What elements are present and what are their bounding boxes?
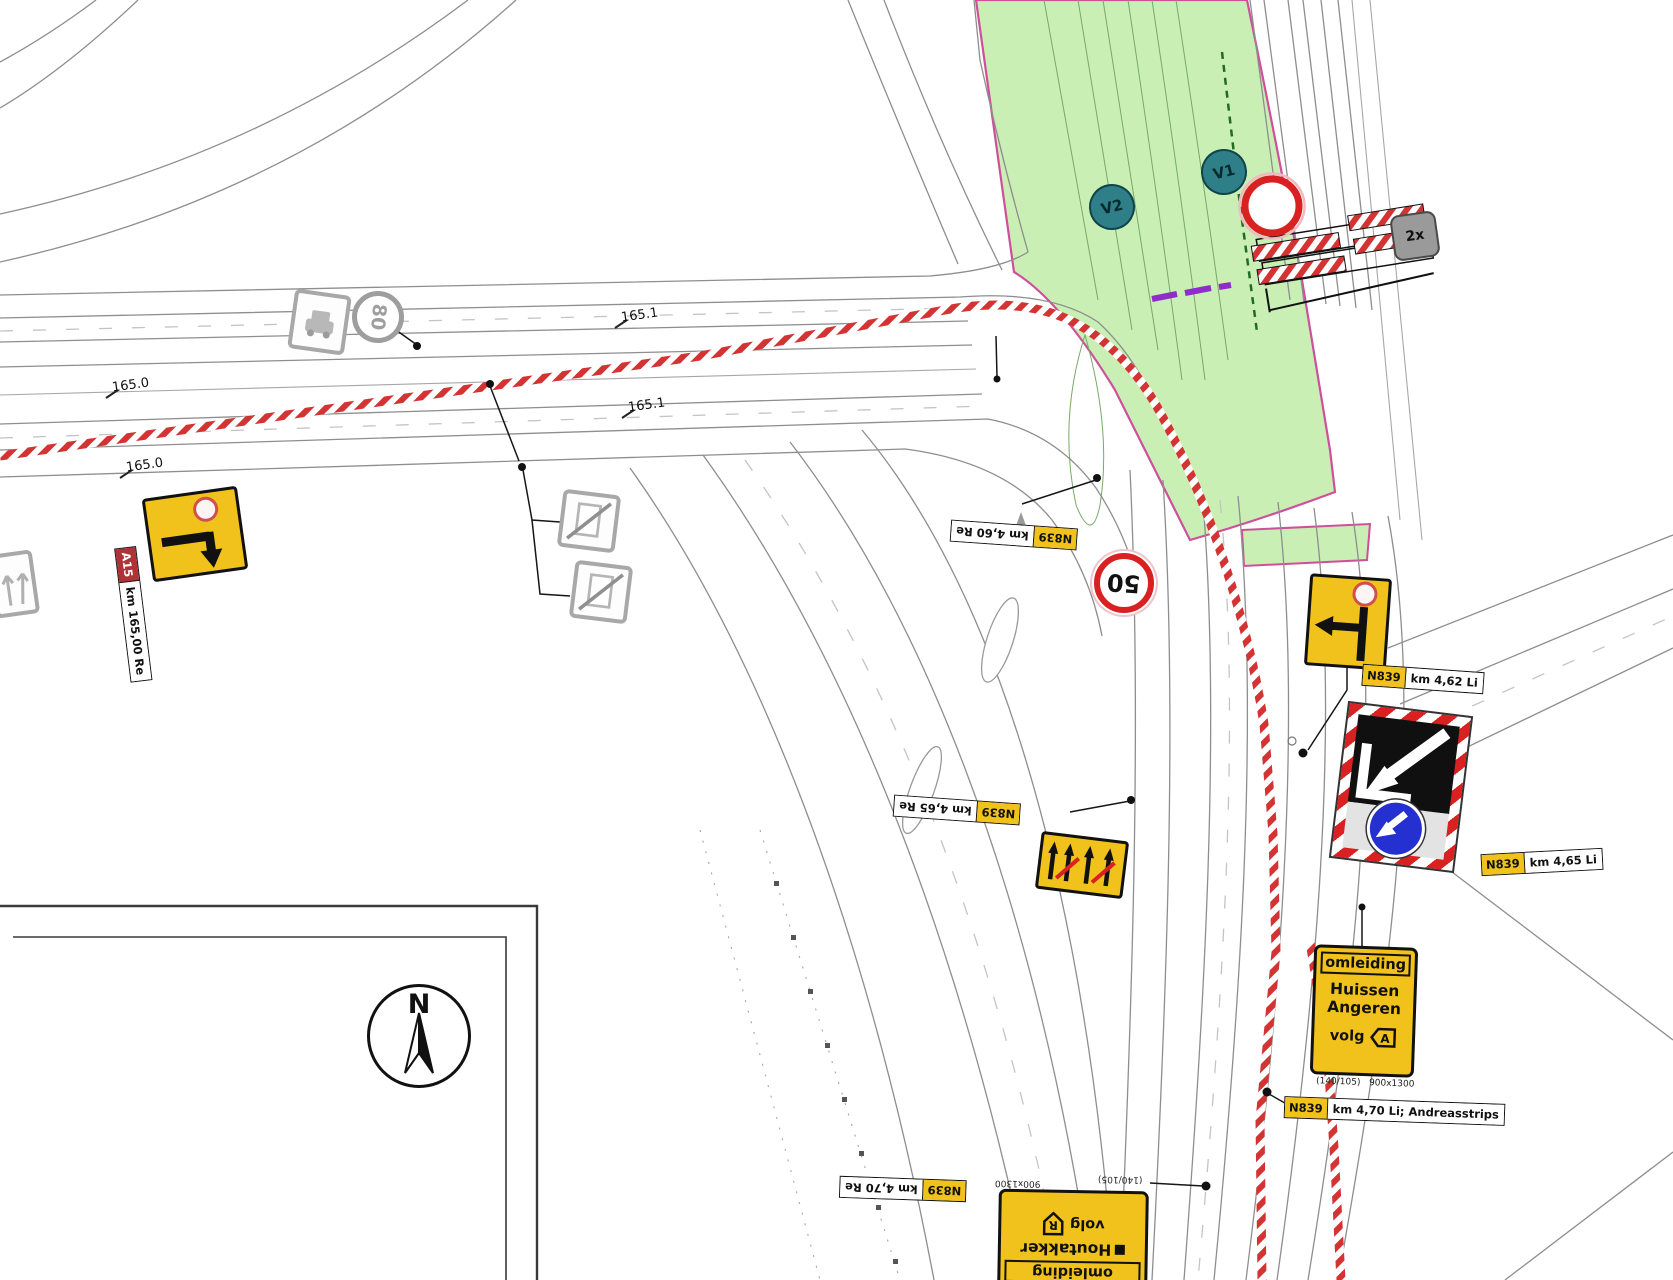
route-code-r-badge: R [1042,1211,1064,1235]
barrier-count-value: 2x [1405,227,1426,245]
arrow-board-panel [1348,714,1460,814]
detour-follow-label: volg [1329,1028,1364,1045]
road-number-a15: A15 [115,547,139,583]
compass-needle-icon [370,987,468,1085]
road-number-n839: N839 [1033,526,1077,549]
detour-destination-1: Houtakker [1020,1239,1111,1259]
detour-sign-huissen: omleiding Huissen Angeren volg A [1310,944,1418,1078]
detour-destination-2: Angeren [1319,997,1410,1018]
spec-size-code: (140/105) [1098,1174,1143,1185]
car-icon [296,299,343,344]
km-value: km 4,62 Li [1405,668,1484,693]
km-value: km 4,65 Li [1524,849,1602,873]
route-code-r: R [1048,1218,1057,1232]
km-value: km 4,65 Re [893,796,977,822]
covered-sign-1 [557,489,622,554]
site-plan-drawing [0,0,1673,1280]
speed-50-value: 50 [1106,568,1141,598]
spec-size-code: (140/105) [1316,1076,1361,1088]
arrow-board-truck [1329,701,1473,873]
road-number-n839: N839 [922,1180,965,1201]
keep-left-arrow-icon [1368,800,1419,851]
km-value: km 4,70 Re [840,1177,923,1200]
detour-arrow-sign-west [142,486,249,583]
lane-merge-arrows-icon [1039,836,1124,893]
closed-road-sign [1240,174,1305,239]
existing-car-sign [287,288,352,355]
route-code-a: A [1381,1032,1391,1046]
road-number-n839: N839 [1285,1097,1328,1118]
industrial-area-icon [1115,1245,1125,1255]
route-code-a-badge: A [1370,1027,1397,1048]
lane-merge-sign [1035,831,1129,899]
lane-arrows-icon [0,559,32,609]
detour-header: omleiding [1004,1260,1140,1280]
road-number-n839: N839 [976,801,1020,824]
km-chip-n839-470re: N839 km 4,70 Re [839,1176,967,1202]
speed-80-value: 80 [366,303,390,331]
work-zone-green-patch [1242,524,1370,566]
covered-sign-icon [573,564,629,620]
road-number-n839: N839 [1362,665,1406,688]
sign-spec-print: 900x1300 [995,1178,1041,1189]
detour-follow-label: volg [1070,1216,1105,1233]
barrier-count-tag: 2x [1389,210,1441,262]
covered-sign-2 [569,560,634,625]
diagonal-arrow-icon [1348,714,1460,814]
spec-dimensions: 900x1300 [1369,1078,1415,1090]
work-zone-stripe-boundary [0,305,1341,1280]
road-lines [0,0,1673,1280]
km-value: km 4,60 Re [950,521,1034,547]
title-block-frame [0,906,537,1280]
spec-dimensions: 900x1300 [995,1178,1041,1189]
detour-header: omleiding [1320,951,1411,976]
north-arrow: N [367,984,471,1088]
turn-left-arrow-icon [1308,578,1388,667]
keep-left-sign [1364,796,1429,861]
phase-v1-label: V1 [1211,161,1237,184]
phase-v2-label: V2 [1099,196,1125,219]
road-number-n839: N839 [1482,853,1526,875]
covered-sign-icon [561,493,617,549]
temporary-speed-50-sign: 50 [1094,553,1154,613]
traffic-plan-canvas: 165.0 165.0 165.1 165.1 80 V2 V [0,0,1673,1280]
detour-sign-houtakker: omleiding Houtakker volg R [997,1189,1149,1280]
existing-speed-80-sign: 80 [352,291,404,343]
sign-spec-print: (140/105) [1098,1174,1143,1185]
point-marker [1288,737,1296,745]
turn-right-arrow-icon [146,490,244,578]
detour-arrow-sign-left [1304,573,1392,670]
